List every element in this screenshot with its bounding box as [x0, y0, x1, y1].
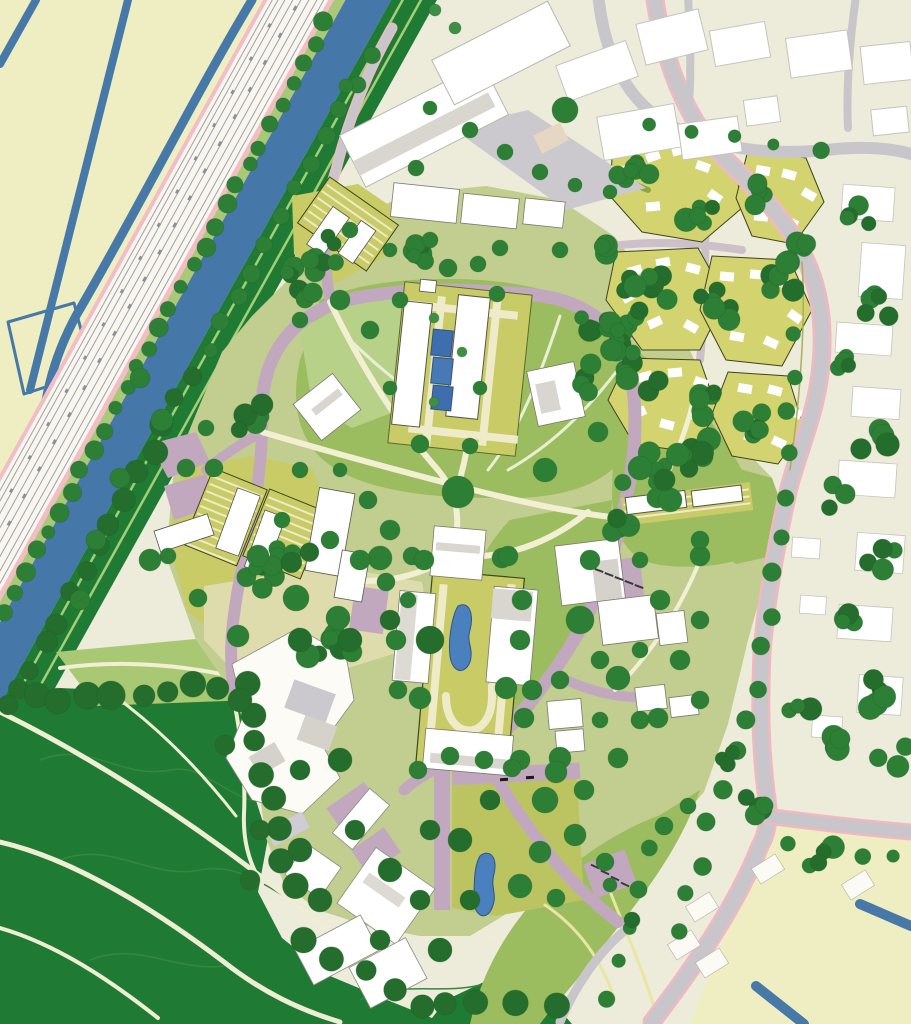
masterplan-svg	[0, 0, 911, 1024]
site-plan-map	[0, 0, 911, 1024]
